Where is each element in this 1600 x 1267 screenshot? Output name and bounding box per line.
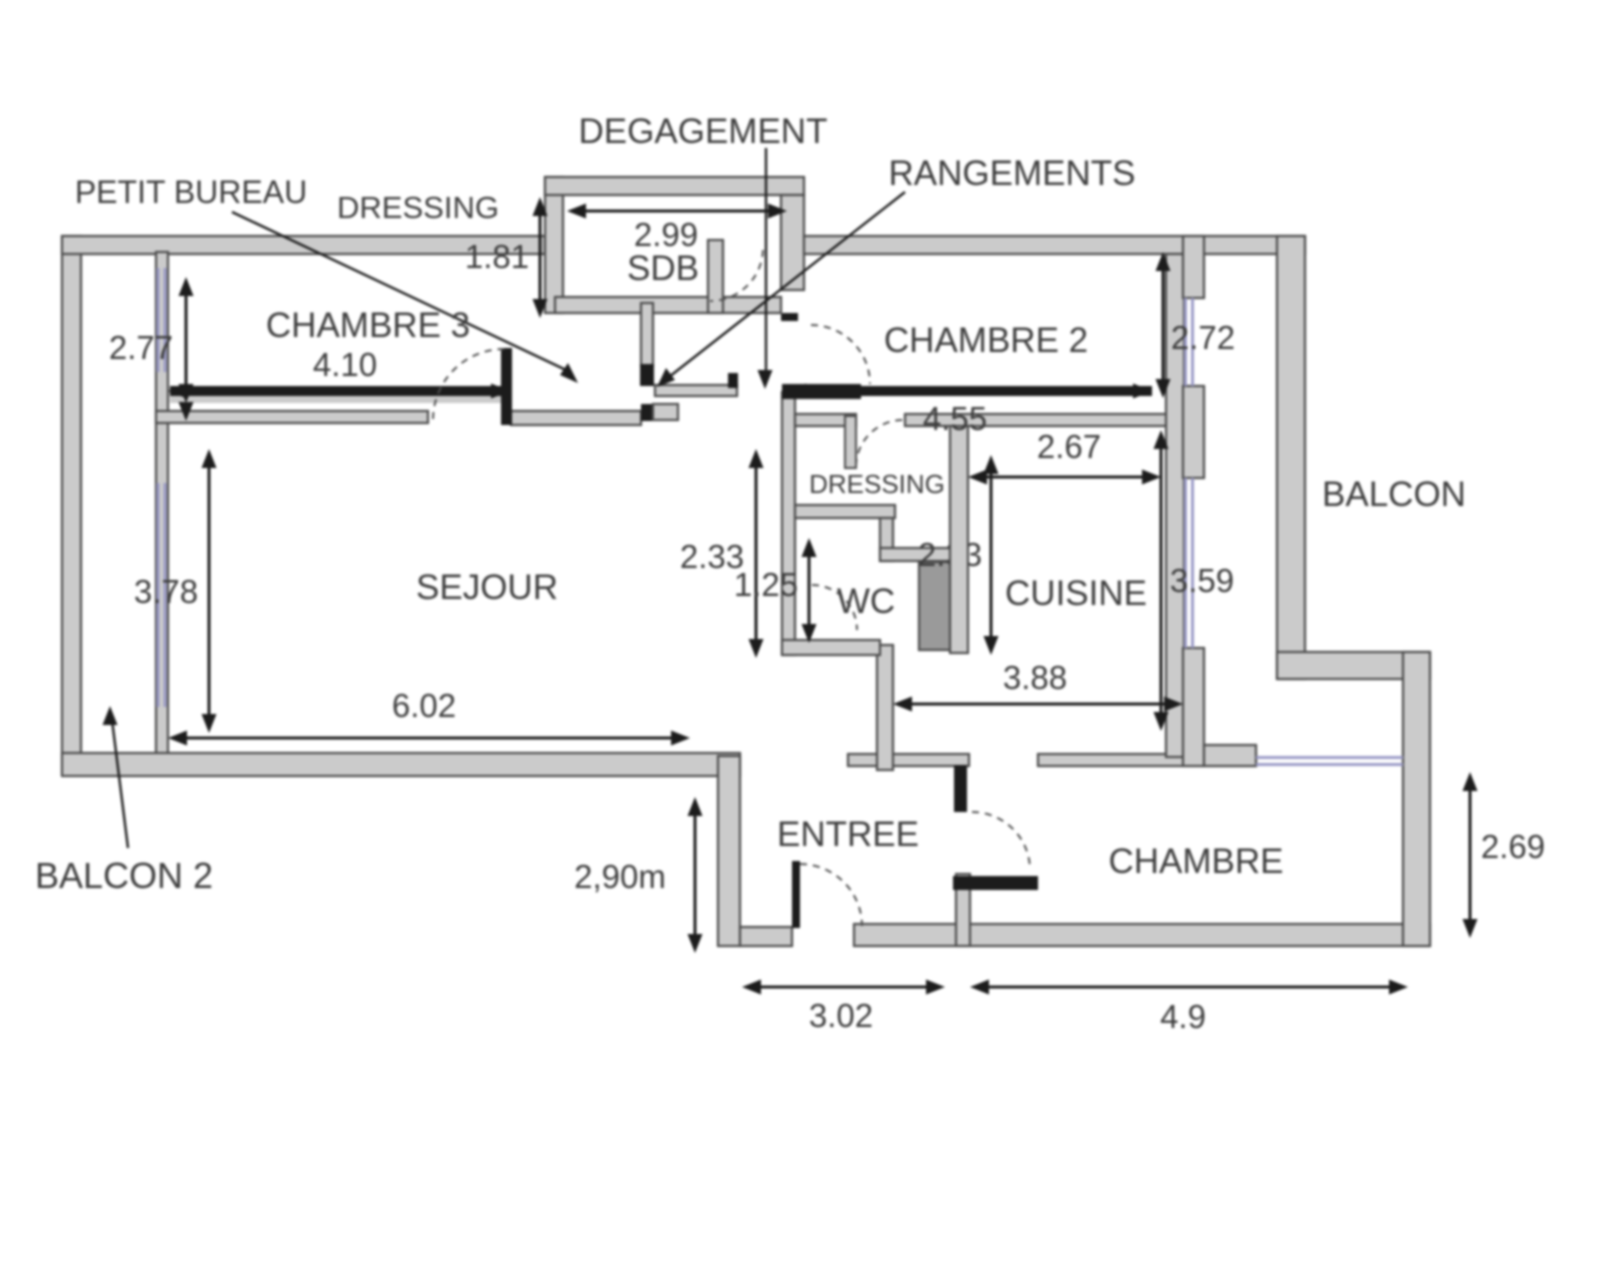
svg-text:2,90m: 2,90m	[574, 858, 666, 895]
svg-text:RANGEMENTS: RANGEMENTS	[889, 154, 1136, 193]
svg-text:1.81: 1.81	[465, 238, 529, 275]
svg-text:CHAMBRE 2: CHAMBRE 2	[884, 321, 1088, 360]
svg-text:CUISINE: CUISINE	[1005, 574, 1147, 613]
svg-text:1.25: 1.25	[734, 566, 798, 603]
svg-text:DEGAGEMENT: DEGAGEMENT	[579, 112, 828, 151]
svg-text:2.67: 2.67	[1037, 428, 1101, 465]
svg-text:4.55: 4.55	[923, 400, 987, 437]
svg-text:3.59: 3.59	[1170, 562, 1234, 599]
svg-text:BALCON 2: BALCON 2	[35, 855, 213, 896]
svg-text:SDB: SDB	[627, 249, 699, 288]
svg-text:3.02: 3.02	[809, 997, 873, 1034]
svg-text:2.77: 2.77	[109, 329, 173, 366]
svg-text:PETIT BUREAU: PETIT BUREAU	[75, 174, 307, 210]
svg-text:3.88: 3.88	[1003, 659, 1067, 696]
svg-text:CHAMBRE 3: CHAMBRE 3	[266, 306, 470, 345]
svg-text:2.72: 2.72	[1171, 319, 1235, 356]
svg-text:CHAMBRE: CHAMBRE	[1108, 842, 1283, 881]
svg-text:6.02: 6.02	[392, 687, 456, 724]
svg-text:ENTREE: ENTREE	[777, 815, 919, 854]
svg-text:4.9: 4.9	[1160, 998, 1206, 1035]
svg-text:DRESSING: DRESSING	[337, 190, 499, 225]
svg-text:DRESSING: DRESSING	[809, 469, 945, 499]
svg-text:3.78: 3.78	[134, 573, 198, 610]
svg-text:WC: WC	[837, 582, 895, 621]
svg-text:SEJOUR: SEJOUR	[416, 568, 558, 607]
svg-text:4.10: 4.10	[313, 346, 377, 383]
svg-text:BALCON: BALCON	[1322, 475, 1466, 514]
svg-text:2.99: 2.99	[634, 216, 698, 253]
svg-text:2.69: 2.69	[1481, 828, 1545, 865]
